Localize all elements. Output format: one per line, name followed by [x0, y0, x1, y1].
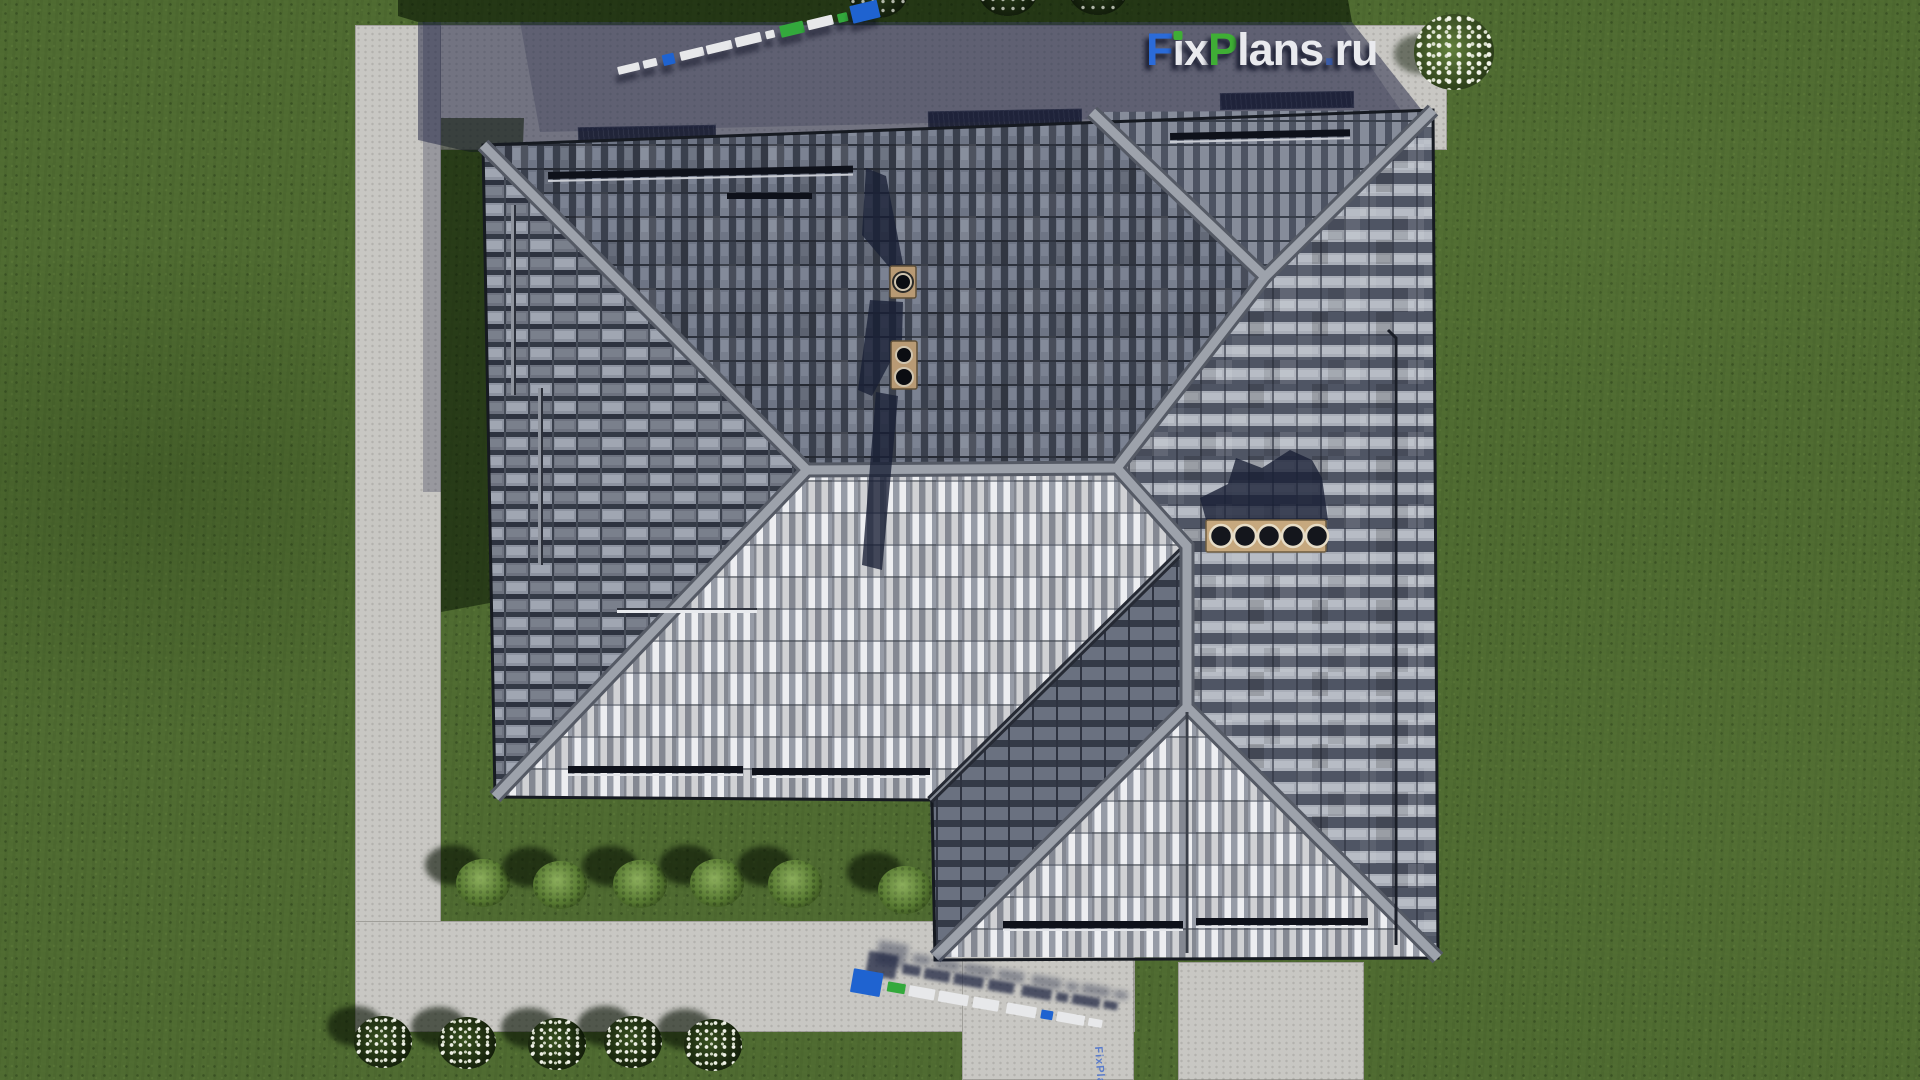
logo3d-block-white: [642, 58, 657, 69]
green-bush-body: [533, 861, 587, 909]
flower-bush-body: [438, 1017, 496, 1069]
logo-letter: i: [1173, 24, 1185, 76]
corner-flower-bush-body: [1414, 14, 1494, 90]
flower-bush-body: [684, 1019, 742, 1071]
green-bush-body: [690, 859, 744, 907]
hip-roof: [0, 0, 1920, 1080]
flower-bush-body: [604, 1016, 662, 1068]
aerial-house-render: FixPlans.ru FixPlans.ru: [0, 0, 1920, 1080]
chimney-small-1: [890, 266, 916, 298]
logo3d-block-white: [1088, 1018, 1103, 1028]
logo-letter: ru: [1335, 24, 1378, 76]
logo-letter: lans: [1237, 24, 1323, 76]
logo3d-block-white: [806, 15, 834, 31]
logo3d-block-white: [1056, 1011, 1085, 1026]
logo3d-block-blue: [850, 968, 884, 997]
logo3d-block-green: [779, 21, 805, 38]
logo3d-block-white: [938, 990, 969, 1006]
logo3d-block-white: [617, 62, 640, 75]
logo-letter: .: [1323, 24, 1335, 76]
logo3d-block-white: [705, 39, 732, 54]
green-bush-body: [768, 860, 822, 908]
green-bush-body: [878, 866, 932, 914]
logo3d-block-white: [765, 30, 776, 40]
logo3d-block-white: [679, 46, 704, 60]
logo3d-block-green: [837, 12, 849, 23]
logo3d-block-blue: [1040, 1009, 1053, 1020]
logo3d-block-white: [1006, 1002, 1037, 1018]
logo3d-block-green: [887, 981, 906, 994]
logo-letter: x: [1184, 24, 1208, 76]
chimney-small-2: [891, 341, 917, 389]
logo3d-block-white: [972, 996, 1000, 1011]
logo-letter: F: [1146, 24, 1173, 76]
logo-letter: P: [1208, 24, 1237, 76]
logo3d-block-blue: [661, 52, 675, 65]
logo3d-block-white: [908, 985, 936, 1000]
logo3d-block-white: [734, 32, 762, 48]
logo-letter-dot: [1174, 31, 1183, 40]
flower-bush-body: [354, 1016, 412, 1068]
fixplans-logo: FixPlans.ru: [1146, 24, 1378, 76]
chimney-vent-block: [1206, 520, 1328, 552]
